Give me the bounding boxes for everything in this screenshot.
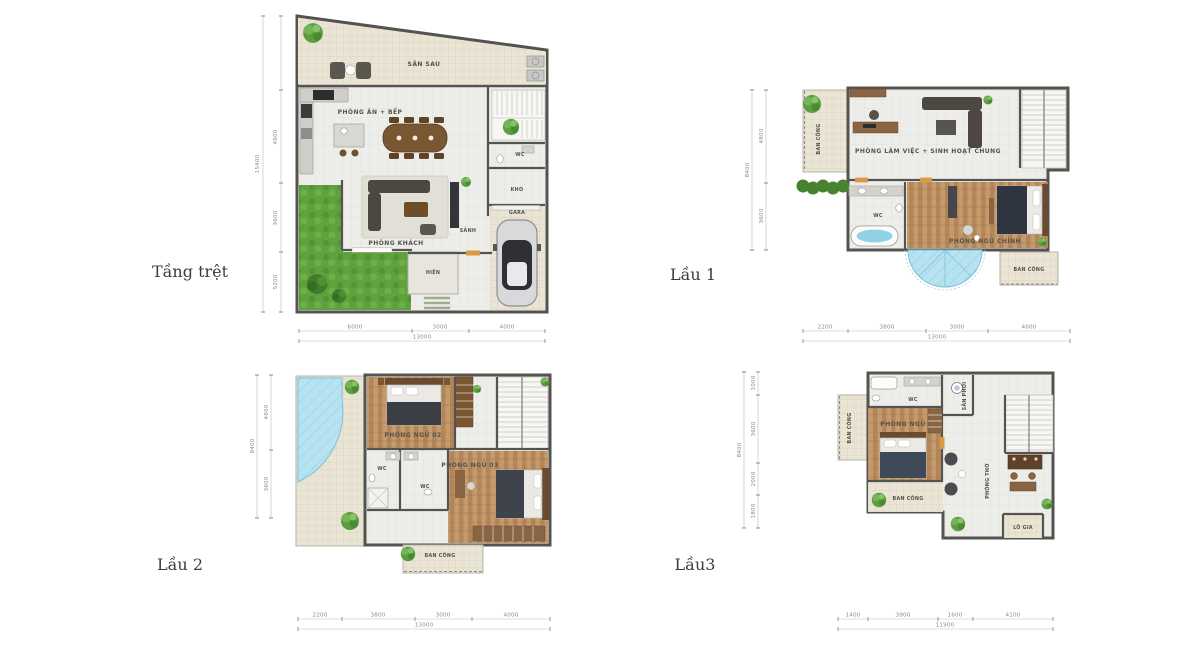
washing-machine-door bbox=[954, 385, 960, 391]
dim-label: 4100 bbox=[1005, 613, 1020, 619]
headboard bbox=[880, 432, 926, 438]
blanket bbox=[496, 470, 524, 518]
altar-item bbox=[1012, 457, 1015, 460]
pillow bbox=[406, 387, 418, 395]
pillow bbox=[884, 440, 896, 447]
plan-ground: SÂN SAU PHÒNG ĂN + BẾP PHÒNG KHÁCH SẢNH … bbox=[255, 16, 547, 343]
room-label: PHÒNG THỜ bbox=[984, 463, 991, 499]
bush bbox=[332, 289, 346, 303]
sink bbox=[390, 454, 396, 460]
office-chair bbox=[869, 110, 879, 120]
plant bbox=[951, 517, 965, 531]
monitor bbox=[863, 124, 876, 128]
bush bbox=[307, 274, 327, 294]
plant bbox=[503, 119, 519, 135]
dim-label: 4800 bbox=[759, 128, 765, 143]
dim-label: 1600 bbox=[947, 613, 962, 619]
headboard bbox=[1042, 184, 1048, 236]
plant bbox=[303, 23, 323, 43]
plant bbox=[803, 95, 821, 113]
dim-label: 11900 bbox=[936, 623, 955, 629]
dim-label: 4600 bbox=[273, 129, 279, 144]
door-threshold bbox=[466, 251, 480, 256]
toilet bbox=[497, 155, 503, 163]
sofa bbox=[368, 193, 381, 231]
garage-door bbox=[492, 206, 540, 211]
room-label: WC bbox=[420, 484, 430, 490]
plant bbox=[541, 378, 550, 387]
room-label: PHÒNG NGỦ 03 bbox=[441, 461, 498, 469]
dim-label: 2000 bbox=[751, 471, 757, 486]
car bbox=[493, 220, 541, 306]
cabinet bbox=[850, 89, 886, 97]
dim-label: 3600 bbox=[264, 476, 270, 491]
headboard bbox=[385, 378, 443, 385]
plan-floor1: BAN CÔNG PHÒNG LÀM VIỆC + SINH HOẠT CHUN… bbox=[745, 88, 1070, 343]
dim-label: 3000 bbox=[949, 325, 964, 331]
room-label: BAN CÔNG bbox=[892, 495, 923, 502]
dim-label: 8400 bbox=[745, 162, 751, 177]
dim-label: 4000 bbox=[499, 325, 514, 331]
blanket bbox=[880, 452, 926, 478]
sofa bbox=[368, 180, 430, 193]
toilet bbox=[896, 204, 902, 212]
plant bbox=[341, 512, 359, 530]
bathtub-water bbox=[857, 230, 893, 243]
sofa bbox=[922, 97, 982, 110]
plant bbox=[872, 493, 886, 507]
bathtub bbox=[871, 377, 897, 389]
floor-title-f2: Lầu 2 bbox=[157, 555, 203, 574]
plant bbox=[461, 177, 471, 187]
vanity bbox=[849, 186, 903, 196]
dim-label: 3000 bbox=[432, 325, 447, 331]
outdoor-chair bbox=[330, 62, 345, 79]
dim-label: 4000 bbox=[1021, 325, 1036, 331]
dim-label: 1400 bbox=[845, 613, 860, 619]
sink bbox=[522, 146, 534, 153]
side-table bbox=[959, 471, 966, 478]
room-label: SÂN PHƠI bbox=[961, 382, 968, 411]
room-label: KHO bbox=[511, 187, 524, 193]
tv-cabinet bbox=[450, 182, 459, 228]
stool bbox=[467, 482, 475, 490]
wardrobe bbox=[473, 526, 545, 541]
room-label: BAN CÔNG bbox=[1013, 266, 1044, 273]
nightstand bbox=[378, 378, 384, 385]
armchair bbox=[420, 224, 436, 235]
balcony-floor bbox=[838, 395, 868, 460]
dim-label: 4000 bbox=[503, 613, 518, 619]
dim-label: 2200 bbox=[312, 613, 327, 619]
headboard bbox=[542, 468, 549, 520]
tv-console bbox=[948, 186, 957, 218]
room-label: LÔ GIA bbox=[1013, 524, 1033, 531]
dim-label: 4800 bbox=[264, 404, 270, 419]
room-label: PHÒNG LÀM VIỆC + SINH HOẠT CHUNG bbox=[855, 147, 1001, 155]
floor-title-f3: Lầu3 bbox=[675, 555, 716, 574]
sink bbox=[880, 188, 888, 194]
sink bbox=[925, 379, 930, 384]
balcony-floor bbox=[403, 545, 483, 573]
stool bbox=[945, 453, 958, 466]
room-label: PHÒNG KHÁCH bbox=[368, 240, 423, 247]
door-threshold bbox=[940, 437, 945, 449]
pillow bbox=[1033, 190, 1040, 206]
pillow bbox=[1033, 214, 1040, 230]
dim-label: 3800 bbox=[879, 325, 894, 331]
stool bbox=[340, 150, 347, 157]
chair bbox=[1011, 473, 1018, 480]
dim-label: 13000 bbox=[928, 335, 947, 341]
room-label: PHÒNG NGỦ 02 bbox=[384, 431, 441, 439]
dim-label: 13000 bbox=[415, 623, 434, 629]
dim-label: 15400 bbox=[255, 154, 261, 173]
plant bbox=[1038, 238, 1047, 247]
room-label: WC bbox=[377, 466, 387, 472]
toilet bbox=[872, 395, 880, 401]
bench bbox=[1010, 482, 1036, 491]
dim-label: 3900 bbox=[895, 613, 910, 619]
bench bbox=[989, 198, 994, 224]
floor-title-ground: Tầng trệt bbox=[152, 262, 229, 281]
dim-label: 3600 bbox=[751, 421, 757, 436]
dim-label: 3000 bbox=[435, 613, 450, 619]
room-label: BAN CÔNG bbox=[424, 552, 455, 559]
pouf bbox=[963, 225, 973, 235]
pillow bbox=[534, 496, 541, 510]
chair bbox=[1029, 473, 1036, 480]
coffee-table bbox=[936, 120, 956, 135]
dim-label: 3800 bbox=[370, 613, 385, 619]
pillow bbox=[534, 474, 541, 488]
toilet bbox=[369, 474, 375, 482]
cooktop bbox=[313, 90, 334, 100]
sink bbox=[341, 128, 347, 134]
stool bbox=[352, 150, 359, 157]
pillow bbox=[391, 387, 403, 395]
sink bbox=[408, 454, 414, 460]
dim-label: 3600 bbox=[273, 210, 279, 225]
outdoor-table bbox=[346, 65, 356, 75]
pillow bbox=[898, 440, 910, 447]
sink bbox=[858, 188, 866, 194]
room-label: PHÒNG NGỦ CHÍNH bbox=[949, 237, 1021, 245]
dim-label: 8400 bbox=[250, 438, 256, 453]
oven bbox=[301, 128, 312, 139]
altar-table bbox=[1008, 455, 1042, 469]
dim-label: 6000 bbox=[347, 325, 362, 331]
blanket bbox=[997, 186, 1027, 234]
dim-label: 1800 bbox=[751, 503, 757, 518]
sink bbox=[909, 379, 914, 384]
room-label: PHÒNG NGỦ bbox=[880, 420, 925, 428]
stool bbox=[945, 483, 958, 496]
outdoor-chair bbox=[356, 62, 371, 79]
room-label: PHÒNG ĂN + BẾP bbox=[338, 108, 403, 116]
sofa bbox=[968, 110, 982, 148]
dim-label: 3600 bbox=[759, 208, 765, 223]
dim-label: 13000 bbox=[413, 335, 432, 341]
coffee-table bbox=[404, 202, 428, 217]
dim-label: 2200 bbox=[817, 325, 832, 331]
altar-item bbox=[1023, 457, 1026, 460]
plant bbox=[345, 380, 359, 394]
nightstand bbox=[444, 378, 450, 385]
ac-unit bbox=[527, 70, 544, 81]
dim-label: 1000 bbox=[751, 375, 757, 390]
room-label: BAN CÔNG bbox=[815, 123, 822, 154]
room-label: GARA bbox=[509, 210, 525, 216]
kitchen-island bbox=[334, 124, 364, 147]
window bbox=[352, 248, 392, 253]
floor-plans-drawing: Tầng trệt Lầu 1 Lầu 2 Lầu3 bbox=[0, 0, 1200, 646]
plant bbox=[473, 385, 481, 393]
room-label: SÂN SAU bbox=[408, 61, 441, 68]
hedge bbox=[797, 180, 850, 195]
floor-title-f1: Lầu 1 bbox=[670, 265, 716, 284]
blanket bbox=[387, 402, 441, 425]
room-label: BAN CÔNG bbox=[846, 412, 853, 443]
door-threshold bbox=[855, 178, 868, 183]
plant bbox=[1042, 499, 1053, 510]
door-threshold bbox=[920, 178, 932, 183]
plan-floor3: BAN CÔNG WC PHÒNG NGỦ SÂN PHƠI PHÒNG THỜ… bbox=[737, 372, 1053, 631]
altar-item bbox=[1034, 457, 1037, 460]
dim-label: 5200 bbox=[273, 274, 279, 289]
room-label: WC bbox=[873, 213, 883, 219]
plant bbox=[984, 96, 993, 105]
dresser bbox=[455, 470, 465, 498]
room-label: WC bbox=[515, 152, 525, 158]
ac-unit bbox=[527, 56, 544, 67]
plant bbox=[401, 547, 415, 561]
floor-plans-canvas: Tầng trệt Lầu 1 Lầu 2 Lầu3 bbox=[0, 0, 1200, 646]
dim-label: 8400 bbox=[737, 442, 743, 457]
fridge bbox=[301, 104, 312, 118]
room-label: WC bbox=[908, 397, 918, 403]
wardrobe bbox=[455, 377, 473, 427]
plan-floor2: PHÒNG NGỦ 02 WC WC PHÒNG NGỦ 03 BAN CÔNG… bbox=[250, 375, 550, 631]
